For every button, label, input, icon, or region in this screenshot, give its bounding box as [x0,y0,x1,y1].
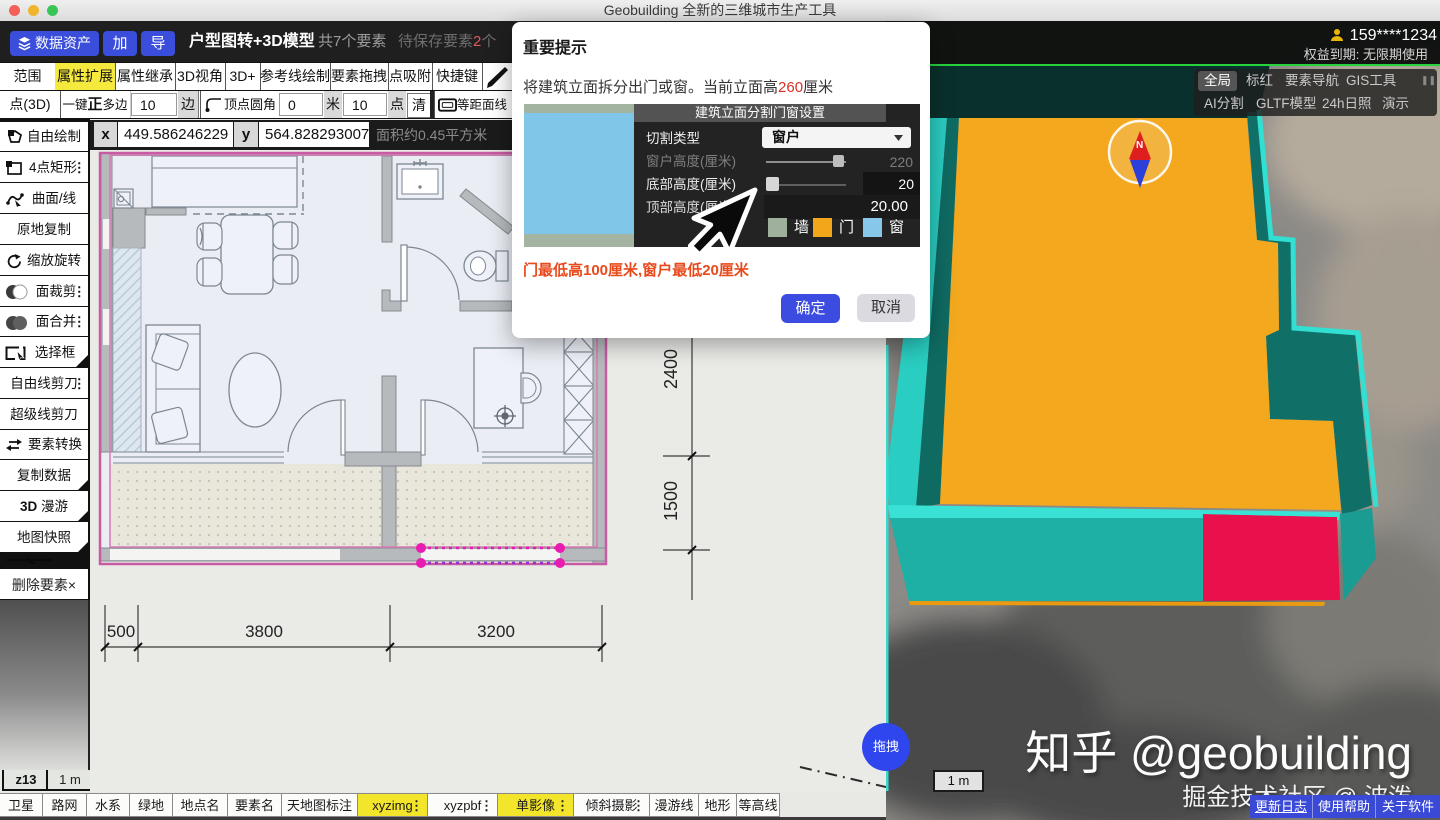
svg-text:500: 500 [107,622,135,641]
svg-text:3200: 3200 [477,622,515,641]
svg-text:1500: 1500 [661,481,681,521]
svg-text:N: N [1136,140,1143,151]
svg-text:3800: 3800 [245,622,283,641]
svg-text:2400: 2400 [661,349,681,389]
